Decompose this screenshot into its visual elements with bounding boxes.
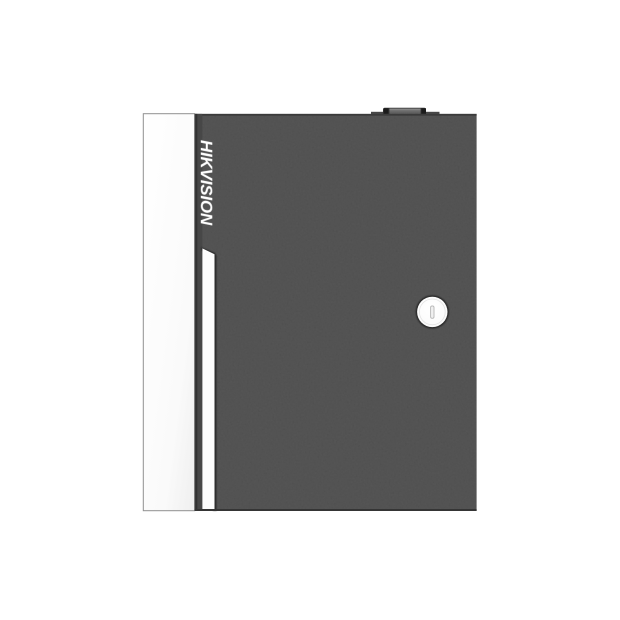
- svg-text:HIKVISION: HIKVISION: [197, 140, 216, 226]
